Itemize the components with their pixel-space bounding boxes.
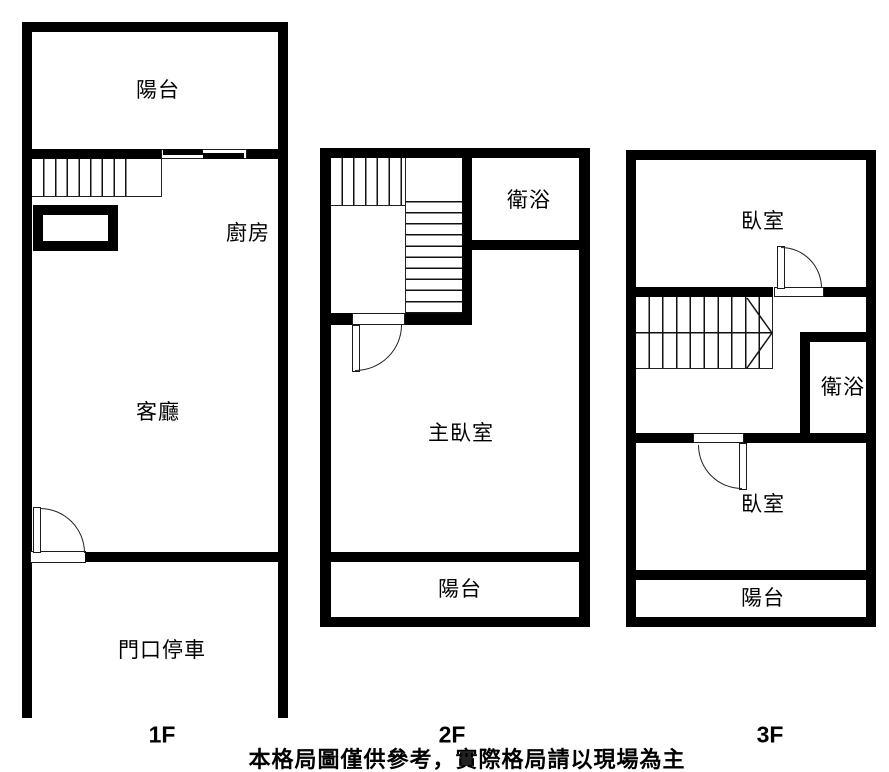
room-label-parking-1f: 門口停車 [118, 634, 206, 664]
wall-2f-stairwell-right [462, 148, 472, 325]
window-sash [163, 149, 203, 155]
understair-closet-1f [33, 205, 118, 251]
room-label-bathroom-2f: 衛浴 [507, 184, 551, 214]
wall-3f-top [626, 150, 876, 160]
floor-label-3f: 3F [757, 722, 784, 749]
wall-3f-divider1-left [626, 287, 773, 297]
room-label-bedroom-top-3f: 臥室 [741, 205, 785, 235]
wall-1f-left [22, 22, 32, 718]
staircase-2f-upper-run [331, 158, 405, 206]
floor-label-1f: 1F [149, 722, 176, 749]
room-label-bathroom-3f: 衛浴 [821, 371, 865, 401]
wall-2f-bathroom-bottom [462, 240, 590, 250]
wall-3f-right [866, 150, 876, 627]
door-threshold-3f-bedroom-bottom [693, 433, 744, 443]
staircase-1f [32, 159, 162, 197]
wall-1f-parking-divider [85, 552, 288, 562]
wall-3f-divider1-right [823, 287, 876, 297]
room-label-kitchen-1f: 廚房 [226, 217, 270, 247]
wall-3f-left [626, 150, 636, 627]
door-swing-arc-3f-bedroom-bottom [698, 445, 742, 489]
door-swing-arc-2f [355, 325, 402, 371]
wall-2f-stairwell-bottom-left [320, 313, 352, 325]
room-label-bedroom-bottom-3f: 臥室 [741, 488, 785, 518]
window-sash [203, 153, 244, 159]
room-label-living-room-1f: 客廳 [136, 396, 180, 426]
door-swing-arc-1f [40, 508, 85, 553]
wall-1f-right [278, 22, 288, 718]
wall-3f-divider2-left [626, 433, 693, 443]
room-label-balcony-1f: 陽台 [136, 74, 180, 104]
room-label-balcony-2f: 陽台 [438, 573, 482, 603]
wall-1f-top [22, 22, 288, 32]
room-label-master-bedroom-2f: 主臥室 [428, 417, 494, 447]
wall-1f-balcony-divider-left [22, 149, 161, 159]
wall-2f-stairwell-bottom-right [404, 313, 472, 325]
floor-plan-diagram: 陽台 廚房 客廳 門口停車 1F 衛浴 主臥室 陽台 2F [0, 0, 889, 772]
wall-3f-balcony-divider [626, 570, 876, 580]
stair-direction-arrow [636, 297, 773, 369]
door-swing-arc-3f-bedroom-top [781, 247, 822, 288]
stair-treads [33, 159, 132, 196]
wall-1f-balcony-divider-right [247, 149, 288, 159]
wall-2f-balcony-divider [320, 552, 590, 562]
wall-3f-divider2-right [743, 433, 876, 443]
wall-2f-bottom [320, 617, 590, 627]
wall-3f-bathroom-top [800, 332, 876, 342]
wall-3f-bottom [626, 617, 876, 627]
wall-2f-top [320, 148, 590, 158]
disclaimer-text: 本格局圖僅供參考，實際格局請以現場為主 [248, 742, 685, 772]
room-label-balcony-3f: 陽台 [741, 582, 785, 612]
staircase-2f-lower-run [405, 158, 462, 314]
wall-3f-bathroom-left [800, 332, 810, 443]
door-threshold-2f [352, 313, 405, 325]
